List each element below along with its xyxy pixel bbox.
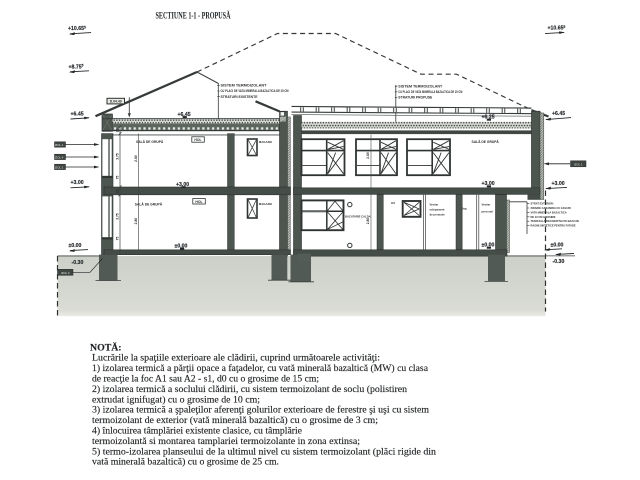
svg-text:+3.00: +3.00 bbox=[71, 180, 84, 186]
svg-text:3) izolarea termică a şpaleţil: 3) izolarea termică a şpaleţilor aferenţ… bbox=[92, 405, 429, 416]
svg-text:VATA MINERALA BAZALTICA: VATA MINERALA BAZALTICA bbox=[531, 210, 567, 214]
svg-text:de reacţie la foc A1 sau A2 -: de reacţie la foc A1 sau A2 - s1, d0 cu … bbox=[92, 374, 319, 385]
svg-text:SALĂ DE GRUPĂ: SALĂ DE GRUPĂ bbox=[136, 139, 164, 144]
svg-text:+10.655: +10.655 bbox=[68, 26, 86, 33]
svg-text:IZOL 1: IZOL 1 bbox=[574, 162, 583, 166]
svg-text:20: 20 bbox=[116, 189, 120, 193]
svg-text:RASINI SINTETICE PENTRU FATADE: RASINI SINTETICE PENTRU FATADE bbox=[531, 224, 576, 228]
svg-text:5) termo-izolarea planseului d: 5) termo-izolarea planseului de la ultim… bbox=[92, 446, 436, 457]
svg-text:TENCUIALA DECORATIVA PE BAZA D: TENCUIALA DECORATIVA PE BAZA DE bbox=[531, 219, 580, 223]
svg-text:IZOL 2: IZOL 2 bbox=[55, 165, 64, 169]
svg-text:2) izolarea termică a soclului: 2) izolarea termică a soclului clădirii,… bbox=[92, 384, 407, 395]
svg-text:±0.00: ±0.00 bbox=[69, 243, 82, 249]
svg-text:IZOL 3: IZOL 3 bbox=[61, 271, 70, 275]
svg-text:+6.45: +6.45 bbox=[71, 111, 84, 117]
svg-text:BUCATARIE CALDA: BUCATARIE CALDA bbox=[345, 214, 371, 218]
svg-text:NOTĂ:: NOTĂ: bbox=[90, 341, 122, 353]
svg-text:de protectie: de protectie bbox=[430, 213, 446, 217]
svg-text:vată minerală bazaltică) cu o: vată minerală bazaltică) cu o grosime de… bbox=[92, 457, 279, 468]
svg-text:echipament: echipament bbox=[430, 208, 445, 212]
svg-text:STRATURI PROPUSE: STRATURI PROPUSE bbox=[398, 96, 433, 100]
svg-text:Dep.: Dep. bbox=[462, 207, 468, 211]
svg-text:G5: G5 bbox=[391, 201, 395, 205]
svg-text:CU PLACI DE VATA MINERALA BAZA: CU PLACI DE VATA MINERALA BAZALTICA DE 2… bbox=[221, 89, 289, 93]
svg-text:2.80: 2.80 bbox=[366, 152, 370, 159]
svg-text:MAGAZIE: MAGAZIE bbox=[259, 202, 272, 206]
svg-text:SALĂ DE GRUPĂ: SALĂ DE GRUPĂ bbox=[472, 139, 500, 144]
svg-text:termoizolantă si montarea tamp: termoizolantă si montarea tamplariei ter… bbox=[92, 436, 360, 447]
svg-text:2.80: 2.80 bbox=[366, 218, 370, 225]
svg-text:HOL: HOL bbox=[195, 200, 202, 204]
svg-text:IZOL 1: IZOL 1 bbox=[55, 143, 64, 147]
svg-text:20: 20 bbox=[116, 128, 120, 132]
svg-text:termoizolant de exterior (vat: termoizolant de exterior (vată minerală … bbox=[92, 415, 378, 426]
svg-text:3.75: 3.75 bbox=[116, 153, 120, 160]
svg-text:2.80: 2.80 bbox=[134, 155, 138, 162]
svg-text:+6.45: +6.45 bbox=[552, 111, 565, 117]
svg-text:CU PLACI DE VATA MINERALA BAZA: CU PLACI DE VATA MINERALA BAZALTICA DE 2… bbox=[398, 90, 462, 94]
svg-text:-0.30: -0.30 bbox=[72, 260, 84, 266]
svg-text:IZOL 4: IZOL 4 bbox=[55, 155, 64, 159]
svg-text:+10.655: +10.655 bbox=[548, 25, 566, 32]
svg-text:±0.00: ±0.00 bbox=[551, 242, 564, 248]
svg-text:SALĂ DE GRUPĂ: SALĂ DE GRUPĂ bbox=[135, 201, 163, 206]
svg-text:3.75: 3.75 bbox=[116, 213, 120, 220]
svg-text:75: 75 bbox=[116, 176, 120, 180]
svg-text:4) înlocuirea tâmplăriei exist: 4) înlocuirea tâmplăriei existente clasi… bbox=[92, 426, 303, 437]
svg-text:STRATURI EXISTENTE: STRATURI EXISTENTE bbox=[221, 95, 259, 99]
svg-text:Vestiar: Vestiar bbox=[482, 203, 491, 207]
svg-text:-0.30: -0.30 bbox=[553, 259, 565, 265]
svg-text:1) izolarea termică a părţii o: 1) izolarea termică a părţii opace a faţ… bbox=[92, 363, 429, 374]
svg-text:75: 75 bbox=[116, 237, 120, 241]
svg-text:SISTEM TERMOIZOLANT: SISTEM TERMOIZOLANT bbox=[221, 84, 268, 88]
svg-text:D.04.49: D.04.49 bbox=[110, 100, 122, 104]
svg-text:2.80: 2.80 bbox=[134, 218, 138, 225]
svg-text:SECTIUNE 1-1 - PROPUSĂ: SECTIUNE 1-1 - PROPUSĂ bbox=[156, 10, 231, 20]
svg-text:MAGAZIE: MAGAZIE bbox=[259, 140, 272, 144]
svg-text:STRAT EXTERIOR:: STRAT EXTERIOR: bbox=[531, 202, 554, 206]
svg-text:DE 10 CM GROSIME: DE 10 CM GROSIME bbox=[531, 215, 556, 219]
svg-text:Vestiar: Vestiar bbox=[430, 203, 439, 207]
svg-text:HOL: HOL bbox=[194, 138, 201, 142]
svg-text:ZIDARIE CARAMIDA CU GOLURI: ZIDARIE CARAMIDA CU GOLURI bbox=[531, 206, 572, 210]
svg-text:SISTEM TERMOIZOLANT: SISTEM TERMOIZOLANT bbox=[398, 84, 443, 88]
svg-text:+3.00: +3.00 bbox=[552, 181, 565, 187]
svg-text:+8.755: +8.755 bbox=[69, 64, 84, 71]
svg-text:extrudat ignifugat) cu o grosi: extrudat ignifugat) cu o grosime de 10 c… bbox=[92, 394, 260, 405]
svg-text:Lucrările la spaţiile exterioa: Lucrările la spaţiile exterioare ale clă… bbox=[92, 353, 380, 364]
svg-text:personal: personal bbox=[482, 210, 493, 214]
